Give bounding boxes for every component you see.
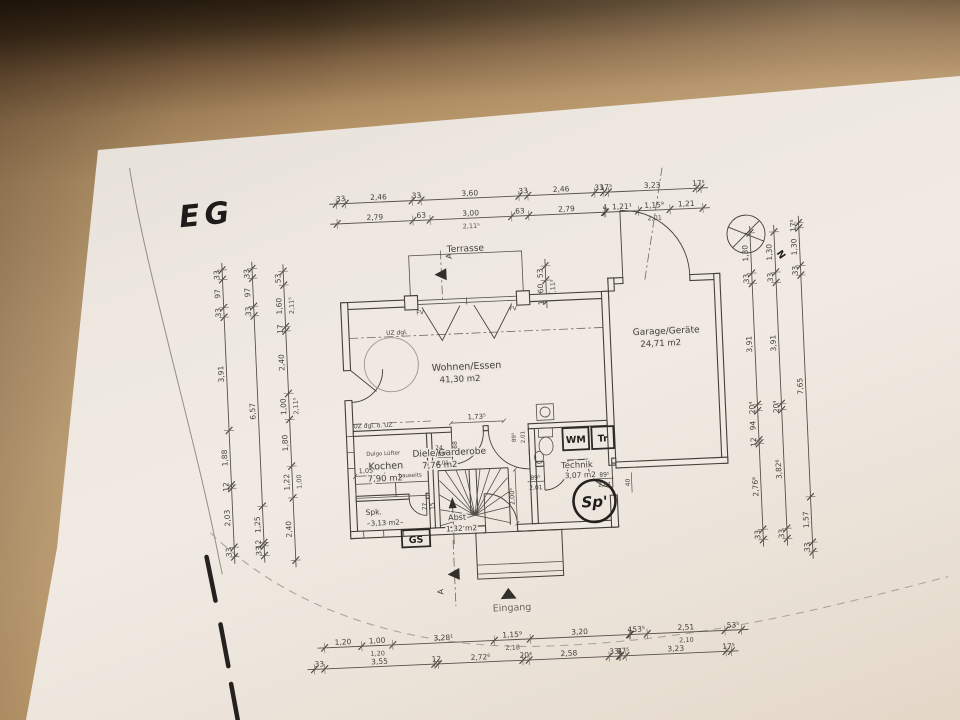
svg-text:20⁴: 20⁴ (519, 650, 532, 660)
svg-text:17⁵: 17⁵ (617, 646, 630, 656)
tr-label: Tr (598, 433, 609, 444)
svg-text:33: 33 (254, 546, 263, 556)
room-garage-name: Garage/Geräte (633, 325, 701, 338)
svg-text:2,46: 2,46 (553, 184, 570, 194)
svg-text:3,91: 3,91 (744, 335, 754, 352)
dim-chain-left-inner: 531,602,11⁵172,401,002,11⁵1,801,221,002,… (273, 264, 307, 568)
svg-text:2,79: 2,79 (366, 212, 383, 222)
dim-chain-right-outer: 17⁵1,30337,651,5733 (788, 216, 818, 560)
svg-text:2,11⁵: 2,11⁵ (462, 222, 480, 231)
svg-text:1,20: 1,20 (334, 637, 351, 647)
svg-text:3,00: 3,00 (462, 208, 479, 218)
svg-text:3,91: 3,91 (216, 365, 226, 382)
entrance-porch (476, 529, 565, 600)
svg-text:33: 33 (777, 528, 786, 538)
dim-door-kochen-h: 2,01 (436, 460, 449, 467)
dim-door-wc-right-h: 2,01 (598, 481, 612, 489)
svg-text:2,18: 2,18 (505, 643, 520, 652)
fv-right-label: FV (509, 305, 518, 312)
north-label: N (774, 248, 788, 261)
svg-text:17⁵: 17⁵ (692, 178, 705, 188)
walls (340, 273, 730, 538)
svg-text:94: 94 (748, 420, 757, 430)
dim-40: 40 (625, 478, 632, 486)
gs-label: GS (408, 534, 423, 546)
svg-text:97: 97 (243, 287, 252, 297)
svg-text:7,65: 7,65 (795, 377, 805, 394)
dim-chain-right-inner: 1,30333,9120⁴94122,76⁶33 (740, 226, 769, 547)
boundary-marker-strokes (207, 556, 238, 720)
svg-text:33: 33 (411, 191, 421, 200)
table-circle (363, 337, 419, 393)
svg-text:2,11⁵: 2,11⁵ (292, 397, 301, 415)
svg-text:33: 33 (212, 270, 221, 280)
toilet-bowl-icon (539, 437, 554, 456)
svg-text:33: 33 (803, 542, 812, 552)
dim-door-diele-h: 2,01 (520, 431, 527, 444)
svg-text:1,00: 1,00 (279, 398, 289, 415)
svg-text:12: 12 (749, 437, 758, 447)
boiler-icon (540, 407, 550, 417)
dim-1-05: 1,05 (359, 467, 374, 476)
dim-chain-right-middle: 1,30333,9120⁴3,82⁶33 (764, 225, 793, 546)
uz-mid-label: UZ dgl. o. UZ (353, 422, 392, 431)
svg-text:20⁴: 20⁴ (771, 400, 781, 413)
dim-chain-left-middle: 3397336,571,251233 (242, 261, 270, 562)
room-wohnen-area: 41,30 m2 (440, 374, 481, 386)
svg-text:2,58: 2,58 (560, 648, 577, 658)
svg-text:1,57: 1,57 (801, 511, 811, 528)
svg-text:2,76⁶: 2,76⁶ (751, 477, 761, 497)
room-garage-area: 24,71 m2 (640, 338, 681, 350)
svg-text:1,15⁹: 1,15⁹ (502, 630, 522, 640)
boiler-box (536, 404, 554, 421)
svg-text:3,82⁶: 3,82⁶ (774, 459, 784, 479)
svg-text:1,25: 1,25 (253, 516, 263, 533)
svg-text:33: 33 (244, 306, 253, 316)
floor-mark-eg: EG (178, 195, 236, 235)
svg-text:2,72⁶: 2,72⁶ (470, 652, 490, 662)
svg-text:17: 17 (275, 324, 284, 334)
dim-1-73: 1,73⁵ (467, 413, 486, 422)
svg-text:12: 12 (431, 654, 441, 663)
room-abst-name: Abst (448, 513, 466, 523)
svg-text:3,23: 3,23 (644, 180, 661, 190)
section-a-bottom-label: A (436, 588, 445, 594)
svg-text:53: 53 (535, 268, 544, 278)
svg-text:33: 33 (224, 547, 233, 557)
svg-text:3,23: 3,23 (667, 644, 684, 654)
terrace-outline (409, 251, 526, 342)
stair-direction-arrow (448, 497, 456, 508)
room-spk-name: Spk. (365, 507, 382, 517)
svg-text:12: 12 (221, 482, 230, 492)
dim-68: 68 (452, 441, 459, 449)
svg-text:2,11⁵: 2,11⁵ (287, 296, 296, 314)
eingang-label: Eingang (493, 602, 532, 615)
svg-text:1,21¹: 1,21¹ (612, 202, 632, 212)
svg-text:17⁵: 17⁵ (599, 182, 612, 192)
svg-text:1,80: 1,80 (280, 434, 290, 451)
svg-text:2,03: 2,03 (223, 509, 233, 526)
svg-text:33: 33 (518, 186, 528, 195)
svg-text:6,57: 6,57 (248, 403, 258, 420)
dim-chain-top-2: 2,79633,002,11⁵632,7941,21¹1,15⁹2,011,21 (330, 198, 711, 236)
dim-chain-bottom-1: 1,201,001,203,28¹1,15⁹2,183,20453⁵2,512,… (317, 620, 749, 660)
svg-text:33: 33 (214, 307, 223, 317)
svg-text:3,20: 3,20 (571, 627, 588, 637)
svg-text:3,28¹: 3,28¹ (433, 633, 453, 643)
svg-text:1,30: 1,30 (764, 243, 774, 260)
svg-text:53: 53 (273, 273, 282, 283)
dim-door-kochen-w: 89⁵ (438, 450, 448, 457)
room-abst-area: 1,32 m2 (446, 523, 478, 533)
svg-text:53⁵: 53⁵ (632, 624, 645, 634)
svg-text:3,60: 3,60 (461, 188, 478, 198)
svg-text:63: 63 (416, 211, 426, 220)
section-arrow-top (434, 268, 447, 281)
svg-text:2,51: 2,51 (677, 622, 694, 632)
dim-door-wc-right-w: 89⁵ (599, 471, 610, 478)
svg-text:1,60: 1,60 (274, 297, 284, 314)
svg-text:2,40: 2,40 (284, 520, 294, 537)
dim-2-00: 2,00⁵ (508, 487, 517, 505)
svg-text:1,22: 1,22 (282, 473, 292, 490)
svg-text:1,30: 1,30 (789, 238, 799, 255)
svg-text:1,21: 1,21 (678, 199, 695, 209)
svg-text:20⁴: 20⁴ (747, 401, 757, 414)
svg-text:53⁵: 53⁵ (727, 620, 740, 630)
svg-text:33: 33 (314, 659, 324, 668)
uz-top-label: UZ dgl. (386, 329, 408, 337)
lufter-note: Dulgo Lüfter (366, 450, 401, 458)
room-kochen-name: Kochen (368, 460, 403, 473)
svg-text:33: 33 (790, 265, 799, 275)
svg-text:63: 63 (515, 206, 525, 215)
svg-text:3,91: 3,91 (768, 334, 778, 351)
section-a-top-label: A (445, 253, 454, 259)
sp-handwritten-label: Sp' (581, 492, 608, 511)
svg-text:1,00: 1,00 (369, 636, 386, 646)
floor-plan-drawing: 332,46333,60332,463317⁵3,2317⁵ 2,79633,0… (0, 0, 960, 720)
wm-label: WM (566, 434, 586, 446)
svg-text:33: 33 (242, 269, 251, 279)
photo-of-floor-plan: 332,46333,60332,463317⁵3,2317⁵ 2,79633,0… (0, 0, 960, 720)
svg-text:2,40: 2,40 (277, 354, 287, 371)
svg-text:2,46: 2,46 (370, 192, 387, 202)
room-technik-area: 3,07 m2 (565, 470, 597, 480)
room-wohnen-name: Wohnen/Essen (432, 360, 502, 374)
svg-text:33: 33 (753, 529, 762, 539)
dim-door-wc-left-h: 2,01 (529, 484, 543, 492)
svg-text:33: 33 (742, 273, 751, 283)
toilet-tank (538, 428, 552, 438)
svg-text:97: 97 (213, 289, 222, 299)
fv-left-label: FV (416, 309, 425, 316)
site-boundary-lines (130, 133, 951, 663)
svg-text:2,79: 2,79 (558, 204, 575, 214)
svg-text:33: 33 (766, 272, 775, 282)
svg-text:17⁵: 17⁵ (722, 641, 735, 651)
svg-text:17⁵: 17⁵ (788, 219, 798, 232)
section-arrow-bottom (447, 568, 460, 581)
dim-15: 15 (429, 502, 436, 510)
svg-text:1,00: 1,00 (295, 474, 304, 489)
svg-text:3,55: 3,55 (371, 657, 388, 667)
svg-text:60: 60 (536, 283, 545, 293)
svg-text:1,15⁹: 1,15⁹ (644, 200, 664, 210)
svg-text:4: 4 (602, 203, 607, 212)
room-spk-area: 3,13 m2 (371, 518, 400, 527)
svg-text:33: 33 (336, 194, 346, 203)
room-diele-name: Diele/Garderobe (412, 447, 486, 460)
bauseits-note: bauseits (399, 472, 423, 479)
entrance-arrow (500, 587, 516, 599)
svg-text:1,88: 1,88 (220, 449, 230, 466)
dim-77: 77 (421, 502, 428, 510)
dim-door-wc-left-w: 89⁵ (530, 474, 541, 481)
dim-chain-left-outer: 3397333,911,88122,0333 (212, 263, 240, 564)
dim-door-diele-w: 89⁵ (510, 433, 517, 443)
